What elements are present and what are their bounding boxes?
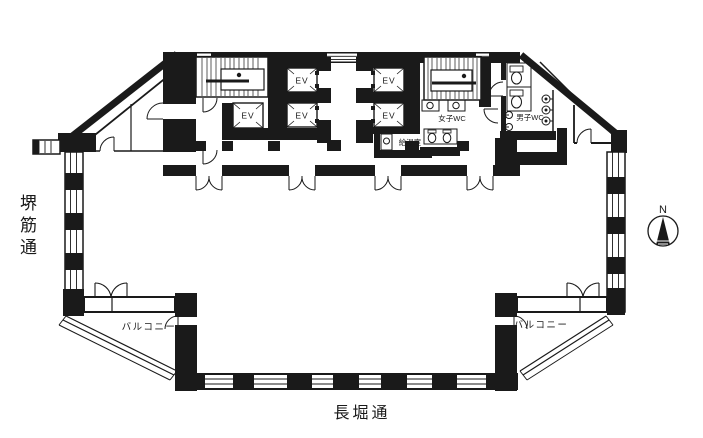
ev-label-5: EV: [382, 111, 395, 121]
double-door-southeast: [567, 283, 599, 297]
street-label-south: 長堀通: [333, 404, 390, 422]
entry-door-northwest: [100, 137, 114, 151]
double-door-2: [289, 176, 315, 190]
mens-wc-label: 男子WC: [516, 113, 544, 122]
balcony-label-left: バルコニー: [122, 322, 177, 333]
office-door-west-core: [147, 103, 163, 119]
window-wall-south: [175, 373, 517, 390]
floor-plan-drawing: N 長堀通 バルコニー バルコニー 女子WC 男子WC 給湯室 EV EV EV…: [0, 0, 703, 438]
southeast-entry: [495, 283, 607, 391]
stairwell-right: [424, 57, 481, 100]
window-wall-east: [607, 152, 625, 315]
double-door-1: [196, 176, 222, 190]
core-double-doors: [196, 176, 493, 190]
corner-room-door: [577, 129, 591, 143]
north-label: N: [659, 204, 667, 216]
southwest-entry: [84, 283, 197, 391]
double-door-3: [375, 176, 401, 190]
double-door-4: [467, 176, 493, 190]
ev-label-2: EV: [295, 76, 308, 86]
balcony-label-right: バルコニー: [514, 320, 569, 331]
compass-north: N: [648, 204, 678, 246]
kitchenette: [381, 134, 392, 150]
ev-label-1: EV: [241, 111, 254, 121]
mens-wc-door: [489, 82, 503, 96]
corridor-door-east: [484, 109, 498, 123]
floor-plan-canvas: 堺筋通: [0, 0, 703, 438]
double-door-southwest: [95, 283, 127, 297]
stair-room-doors: [203, 98, 217, 164]
kitchenette-label: 給湯室: [399, 137, 422, 147]
stairwell-left: [196, 57, 268, 97]
ev-label-4: EV: [382, 76, 395, 86]
ev-label-3: EV: [295, 111, 308, 121]
window-wall-west: [63, 152, 84, 316]
womens-wc-label: 女子WC: [438, 113, 466, 123]
